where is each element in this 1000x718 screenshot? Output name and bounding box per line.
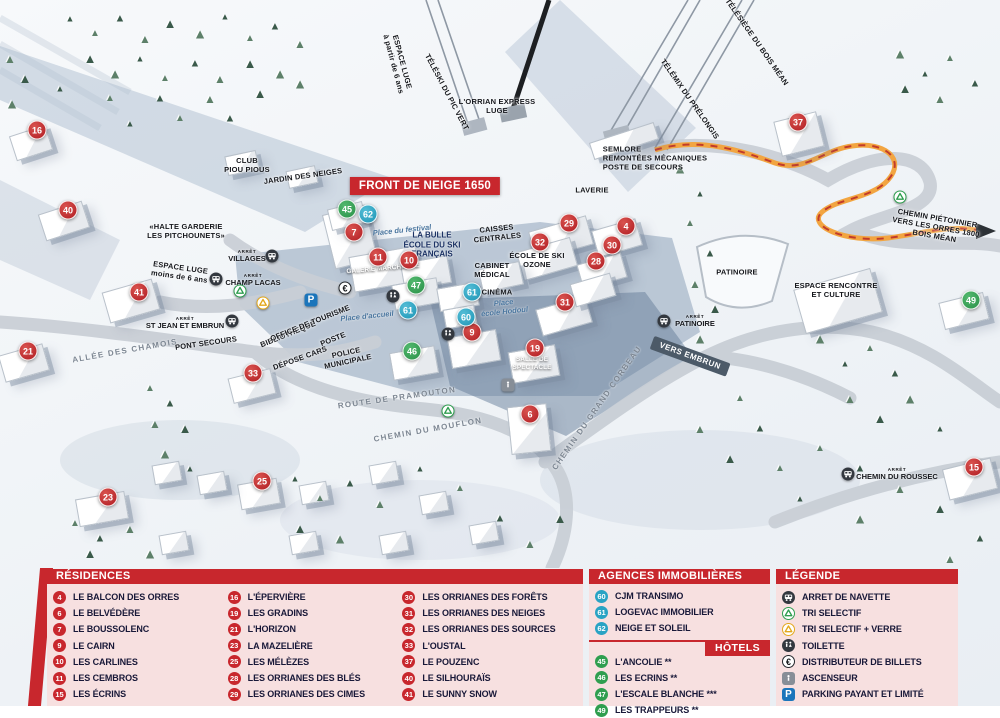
map-label: ESPACE RENCONTREET CULTURE [794, 281, 877, 299]
item-label: LES TRAPPEURS ** [615, 705, 698, 715]
legend-item: TRI SELECTIF + VERRE [782, 621, 952, 637]
item-label: LES ECRINS ** [615, 673, 677, 683]
tree-icon: ▲ [894, 483, 906, 495]
tree-icon: ▲ [495, 513, 506, 524]
tree-icon: ▲ [554, 512, 567, 525]
map-marker-25[interactable]: 25 [253, 472, 272, 491]
euro-icon: € [339, 282, 352, 295]
tree-icon: ▲ [796, 495, 805, 504]
item-label: LES ÉCRINS [73, 689, 126, 699]
parking-icon: P [305, 294, 318, 307]
tree-icon: ▲ [254, 87, 267, 100]
parking-icon: P [782, 688, 795, 701]
recycle-yellow-icon [257, 297, 270, 310]
marker-number: 4 [53, 591, 66, 604]
legend-item: 23LA MAZELIÈRE [228, 638, 403, 654]
map-marker-7[interactable]: 7 [345, 223, 364, 242]
marker-number: 25 [228, 655, 241, 668]
tree-icon: ▲ [273, 67, 287, 81]
tree-icon: ▲ [705, 248, 716, 259]
tree-icon: ▲ [108, 67, 122, 81]
item-label: CJM TRANSIMO [615, 591, 683, 601]
tree-icon: ▲ [126, 120, 135, 129]
map-marker-6[interactable]: 6 [521, 405, 540, 424]
map-marker-4[interactable]: 4 [617, 217, 636, 236]
item-label: LE BELVÉDÈRE [73, 608, 140, 618]
residences-column: 16L'ÉPERVIÈRE19LES GRADINS21L'HORIZON23L… [228, 589, 403, 702]
legend-item: ASCENSEUR [782, 670, 952, 686]
agences-section: AGENCES IMMOBILIÈRES 60CJM TRANSIMO61LOG… [589, 569, 770, 706]
item-label: LES GRADINS [248, 608, 308, 618]
marker-number: 15 [53, 688, 66, 701]
tree-icon: ▲ [970, 78, 981, 89]
tree-icon: ▲ [56, 85, 65, 94]
tree-icon: ▲ [84, 547, 97, 560]
marker-number: 9 [53, 639, 66, 652]
euro-icon: € [782, 655, 795, 668]
tree-icon: ▲ [149, 418, 161, 430]
item-label: LE POUZENC [422, 657, 479, 667]
marker-number: 46 [595, 671, 608, 684]
item-label: LES CEMBROS [73, 673, 138, 683]
tree-icon: ▲ [90, 29, 100, 39]
tree-icon: ▲ [934, 502, 947, 515]
legend-item: 61LOGEVAC IMMOBILIER [595, 604, 764, 620]
map-marker-11[interactable]: 11 [369, 248, 388, 267]
tree-icon: ▲ [5, 97, 19, 111]
tree-icon: ▲ [214, 73, 226, 85]
legend-item: 21L'HORIZON [228, 621, 403, 637]
tree-icon: ▲ [841, 360, 850, 369]
marker-number: 11 [53, 672, 66, 685]
tree-icon: ▲ [685, 219, 695, 229]
marker-number: 16 [228, 591, 241, 604]
item-label: PARKING PAYANT ET LIMITÉ [802, 689, 924, 699]
item-label: LE BOUSSOLENC [73, 624, 149, 634]
map-title: FRONT DE NEIGE 1650 [350, 177, 500, 195]
map-label: CABINETMÉDICAL [474, 261, 510, 279]
tree-icon: ▲ [186, 465, 195, 474]
legend-item: 19LES GRADINS [228, 605, 403, 621]
legend-item: 33L'OUSTAL [402, 638, 577, 654]
map-label: SEMLOREREMONTÉES MÉCANIQUESPOSTE DE SECO… [603, 145, 707, 172]
item-label: DISTRIBUTEUR DE BILLETS [802, 657, 922, 667]
tree-icon: ▲ [175, 114, 185, 124]
legend-item: 40LE SILHOURAÏS [402, 670, 577, 686]
residences-column: 30LES ORRIANES DES FORÊTS31LES ORRIANES … [402, 589, 577, 702]
tree-icon: ▲ [735, 394, 745, 404]
legend-item: 28LES ORRIANES DES BLÉS [228, 670, 403, 686]
map-marker-49[interactable]: 49 [962, 291, 981, 310]
tree-icon: ▲ [204, 93, 216, 105]
elevator-icon [502, 379, 515, 392]
hotels-list: 45L'ANCOLIE **46LES ECRINS **47L'ESCALE … [589, 654, 770, 718]
tree-icon: ▲ [4, 53, 16, 65]
marker-number: 10 [53, 655, 66, 668]
tree-icon: ▲ [345, 478, 356, 489]
tree-icon: ▲ [945, 54, 955, 64]
tree-icon: ▲ [903, 392, 917, 406]
legend-item: 32LES ORRIANES DES SOURCES [402, 621, 577, 637]
map-label: PATINOIRE [716, 268, 758, 277]
tree-icon: ▲ [865, 344, 875, 354]
tree-icon: ▲ [455, 484, 465, 494]
legend-item: 47L'ESCALE BLANCHE *** [595, 686, 764, 702]
tree-icon: ▲ [893, 47, 907, 61]
map-marker-33[interactable]: 33 [244, 364, 263, 383]
tree-icon: ▲ [115, 13, 126, 24]
legend-item: 60CJM TRANSIMO [595, 588, 764, 604]
map-label: ARRÊTCHEMIN DU ROUSSEC [856, 467, 938, 481]
agences-header: AGENCES IMMOBILIÈRES [589, 569, 770, 584]
item-label: LA MAZELIÈRE [248, 641, 313, 651]
toilet-icon [782, 639, 795, 652]
tree-icon: ▲ [164, 17, 177, 30]
toilet-icon [387, 290, 400, 303]
map-marker-29[interactable]: 29 [560, 214, 579, 233]
map-marker-30[interactable]: 30 [603, 236, 622, 255]
recycle-green-icon [442, 405, 455, 418]
tree-icon: ▲ [755, 423, 766, 434]
marker-number: 37 [402, 655, 415, 668]
legend-item: €DISTRIBUTEUR DE BILLETS [782, 654, 952, 670]
map-marker-10[interactable]: 10 [400, 251, 419, 270]
item-label: LES CARLINES [73, 657, 138, 667]
tree-icon: ▲ [124, 523, 136, 535]
tree-icon: ▲ [291, 475, 300, 484]
marker-number: 33 [402, 639, 415, 652]
map-marker-15[interactable]: 15 [965, 458, 984, 477]
legend-item: ARRET DE NAVETTE [782, 589, 952, 605]
map-marker-60[interactable]: 60 [457, 308, 476, 327]
residences-column: 4LE BALCON DES ORRES6LE BELVÉDÈRE7LE BOU… [53, 589, 228, 702]
legend-item: 11LES CEMBROS [53, 670, 228, 686]
map-marker-37[interactable]: 37 [789, 113, 808, 132]
marker-number: 61 [595, 606, 608, 619]
legend-item: 6LE BELVÉDÈRE [53, 605, 228, 621]
map-marker-61[interactable]: 61 [463, 283, 482, 302]
map-label: CLUBPIOU PIOUS [224, 156, 270, 174]
tree-icon: ▲ [944, 553, 956, 565]
tree-icon: ▲ [813, 332, 827, 346]
tree-icon: ▲ [19, 72, 32, 85]
legend-item: TRI SELECTIF [782, 605, 952, 621]
item-label: LE SILHOURAÏS [422, 673, 490, 683]
marker-number: 28 [228, 672, 241, 685]
map-marker-61[interactable]: 61 [399, 301, 418, 320]
item-label: TRI SELECTIF [802, 608, 861, 618]
marker-number: 7 [53, 623, 66, 636]
bus-icon [842, 468, 855, 481]
tree-icon: ▲ [724, 452, 737, 465]
map-marker-19[interactable]: 19 [526, 339, 545, 358]
marker-number: 41 [402, 688, 415, 701]
item-label: LES ORRIANES DES FORÊTS [422, 592, 547, 602]
marker-number: 19 [228, 607, 241, 620]
marker-number: 31 [402, 607, 415, 620]
legende-section: LÉGENDE ARRET DE NAVETTETRI SELECTIFTRI … [776, 569, 958, 706]
tree-icon: ▲ [844, 393, 856, 405]
legend-item: 37LE POUZENC [402, 654, 577, 670]
item-label: TOILETTE [802, 641, 845, 651]
tree-icon: ▲ [294, 522, 307, 535]
marker-number: 29 [228, 688, 241, 701]
legend-item: 62NEIGE ET SOLEIL [595, 620, 764, 636]
item-label: L'ESCALE BLANCHE *** [615, 689, 717, 699]
recycle-green-icon [894, 191, 907, 204]
bus-icon [782, 591, 795, 604]
recycle-yellow-icon [782, 623, 795, 636]
map-label: ARRÊTVILLAGES [228, 249, 266, 263]
tree-icon: ▲ [874, 412, 887, 425]
elevator-icon [782, 672, 795, 685]
tree-icon: ▲ [139, 33, 151, 45]
legend-item: 10LES CARLINES [53, 654, 228, 670]
map-marker-21[interactable]: 21 [19, 342, 38, 361]
tree-icon: ▲ [853, 512, 867, 526]
item-label: LES ORRIANES DES NEIGES [422, 608, 545, 618]
tree-icon: ▲ [179, 422, 192, 435]
legend-item: 4LE BALCON DES ORRES [53, 589, 228, 605]
tree-icon: ▲ [694, 423, 706, 435]
hotels-header: HÔTELS [705, 641, 770, 656]
legend-item: 16L'ÉPERVIÈRE [228, 589, 403, 605]
map-label: «HALTE GARDERIELES PITCHOUNETS» [147, 222, 225, 240]
item-label: LE SUNNY SNOW [422, 689, 497, 699]
legend-item: 9LE CAIRN [53, 638, 228, 654]
marker-number: 32 [402, 623, 415, 636]
legend-item: 49LES TRAPPEURS ** [595, 702, 764, 718]
marker-number: 47 [595, 688, 608, 701]
legend-item: TOILETTE [782, 638, 952, 654]
tree-icon: ▲ [294, 38, 306, 50]
recycle-green-icon [782, 607, 795, 620]
map-label: CINÉMA [482, 288, 513, 297]
toilet-icon [442, 328, 455, 341]
tree-icon: ▲ [165, 398, 176, 409]
recycle-green-icon [234, 285, 247, 298]
tree-icon: ▲ [145, 384, 155, 394]
hotels-divider: HÔTELS [589, 640, 770, 654]
map-marker-31[interactable]: 31 [556, 293, 575, 312]
tree-icon: ▲ [225, 113, 236, 124]
tree-icon: ▲ [190, 58, 201, 69]
map-label: ARRÊTST JEAN ET EMBRUN [146, 316, 224, 330]
legend-item: 31LES ORRIANES DES NEIGES [402, 605, 577, 621]
tree-icon: ▲ [136, 55, 145, 64]
tree-icon: ▲ [416, 465, 425, 474]
marker-number: 6 [53, 607, 66, 620]
marker-number: 45 [595, 655, 608, 668]
legende-list: ARRET DE NAVETTETRI SELECTIFTRI SELECTIF… [776, 584, 958, 702]
bus-icon [658, 315, 671, 328]
item-label: LE BALCON DES ORRES [73, 592, 179, 602]
marker-number: 23 [228, 639, 241, 652]
map-label: L'ORRIAN EXPRESSLUGE [459, 97, 536, 115]
item-label: TRI SELECTIF + VERRE [802, 624, 902, 634]
map-marker-45[interactable]: 45 [338, 200, 357, 219]
legend-item: 46LES ECRINS ** [595, 670, 764, 686]
tree-icon: ▲ [293, 77, 307, 91]
tree-icon: ▲ [689, 278, 701, 290]
tree-icon: ▲ [333, 532, 347, 546]
tree-icon: ▲ [315, 494, 325, 504]
marker-number: 21 [228, 623, 241, 636]
tree-icon: ▲ [244, 57, 257, 70]
map-marker-40[interactable]: 40 [59, 201, 78, 220]
legend-item: 25LES MÉLÈZES [228, 654, 403, 670]
item-label: L'ÉPERVIÈRE [248, 592, 306, 602]
tree-icon: ▲ [143, 547, 157, 561]
legend-item: 15LES ÉCRINS [53, 686, 228, 702]
map-label: SALLE DESPECTACLE [513, 356, 552, 372]
tree-icon: ▲ [95, 533, 106, 544]
item-label: LES MÉLÈZES [248, 657, 309, 667]
item-label: ARRET DE NAVETTE [802, 592, 890, 602]
item-label: LES ORRIANES DES BLÉS [248, 673, 361, 683]
legend-item: 41LE SUNNY SNOW [402, 686, 577, 702]
tree-icon: ▲ [899, 82, 912, 95]
item-label: LES ORRIANES DES CIMES [248, 689, 365, 699]
item-label: ASCENSEUR [802, 673, 858, 683]
legend-item: 30LES ORRIANES DES FORÊTS [402, 589, 577, 605]
item-label: NEIGE ET SOLEIL [615, 623, 691, 633]
legende-header: LÉGENDE [776, 569, 958, 584]
marker-number: 30 [402, 591, 415, 604]
tree-icon: ▲ [696, 190, 705, 199]
tree-icon: ▲ [155, 93, 166, 104]
residences-header: RÉSIDENCES [47, 569, 583, 584]
residences-list: 4LE BALCON DES ORRES6LE BELVÉDÈRE7LE BOU… [47, 584, 583, 702]
map-marker-23[interactable]: 23 [99, 488, 118, 507]
item-label: LOGEVAC IMMOBILIER [615, 607, 714, 617]
tree-icon: ▲ [193, 27, 207, 41]
item-label: L'HORIZON [248, 624, 296, 634]
bus-icon [266, 250, 279, 263]
tree-icon: ▲ [221, 13, 230, 22]
tree-icon: ▲ [84, 52, 97, 65]
tree-icon: ▲ [70, 519, 80, 529]
tree-icon: ▲ [66, 15, 75, 24]
legend-item: 29LES ORRIANES DES CIMES [228, 686, 403, 702]
map-marker-16[interactable]: 16 [28, 121, 47, 140]
legend-item: PPARKING PAYANT ET LIMITÉ [782, 686, 952, 702]
tree-icon: ▲ [158, 447, 172, 461]
bus-icon [226, 315, 239, 328]
item-label: L'OUSTAL [422, 641, 465, 651]
map-marker-32[interactable]: 32 [531, 233, 550, 252]
map-marker-41[interactable]: 41 [130, 283, 149, 302]
map-marker-28[interactable]: 28 [587, 252, 606, 271]
tree-icon: ▲ [890, 368, 901, 379]
marker-number: 60 [595, 590, 608, 603]
tree-icon: ▲ [374, 498, 386, 510]
marker-number: 40 [402, 672, 415, 685]
map-marker-47[interactable]: 47 [407, 276, 426, 295]
tree-icon: ▲ [693, 332, 707, 346]
map-label: ÉCOLE DE SKIOZONE [509, 251, 564, 269]
tree-icon: ▲ [975, 533, 986, 544]
marker-number: 62 [595, 622, 608, 635]
map-marker-46[interactable]: 46 [403, 342, 422, 361]
tree-icon: ▲ [775, 464, 785, 474]
agences-list: 60CJM TRANSIMO61LOGEVAC IMMOBILIER62NEIG… [589, 584, 770, 637]
residences-section: RÉSIDENCES 4LE BALCON DES ORRES6LE BELVÉ… [47, 569, 583, 706]
item-label: LE CAIRN [73, 641, 115, 651]
tree-icon: ▲ [921, 70, 930, 79]
item-label: L'ANCOLIE ** [615, 657, 671, 667]
map-marker-62[interactable]: 62 [359, 205, 378, 224]
tree-icon: ▲ [934, 93, 946, 105]
tree-icon: ▲ [936, 425, 945, 434]
item-label: LES ORRIANES DES SOURCES [422, 624, 555, 634]
tree-icon: ▲ [105, 94, 115, 104]
tree-icon: ▲ [270, 21, 281, 32]
tree-icon: ▲ [245, 34, 255, 44]
tree-icon: ▲ [524, 538, 536, 550]
tree-icon: ▲ [815, 444, 825, 454]
map-label: LAVERIE [575, 186, 608, 195]
tree-icon: ▲ [160, 74, 170, 84]
bus-icon [210, 273, 223, 286]
map-label: ARRÊTPATINOIRE [675, 314, 715, 328]
legend-item: 7LE BOUSSOLENC [53, 621, 228, 637]
legend-panel: RÉSIDENCES 4LE BALCON DES ORRES6LE BELVÉ… [0, 568, 1000, 706]
